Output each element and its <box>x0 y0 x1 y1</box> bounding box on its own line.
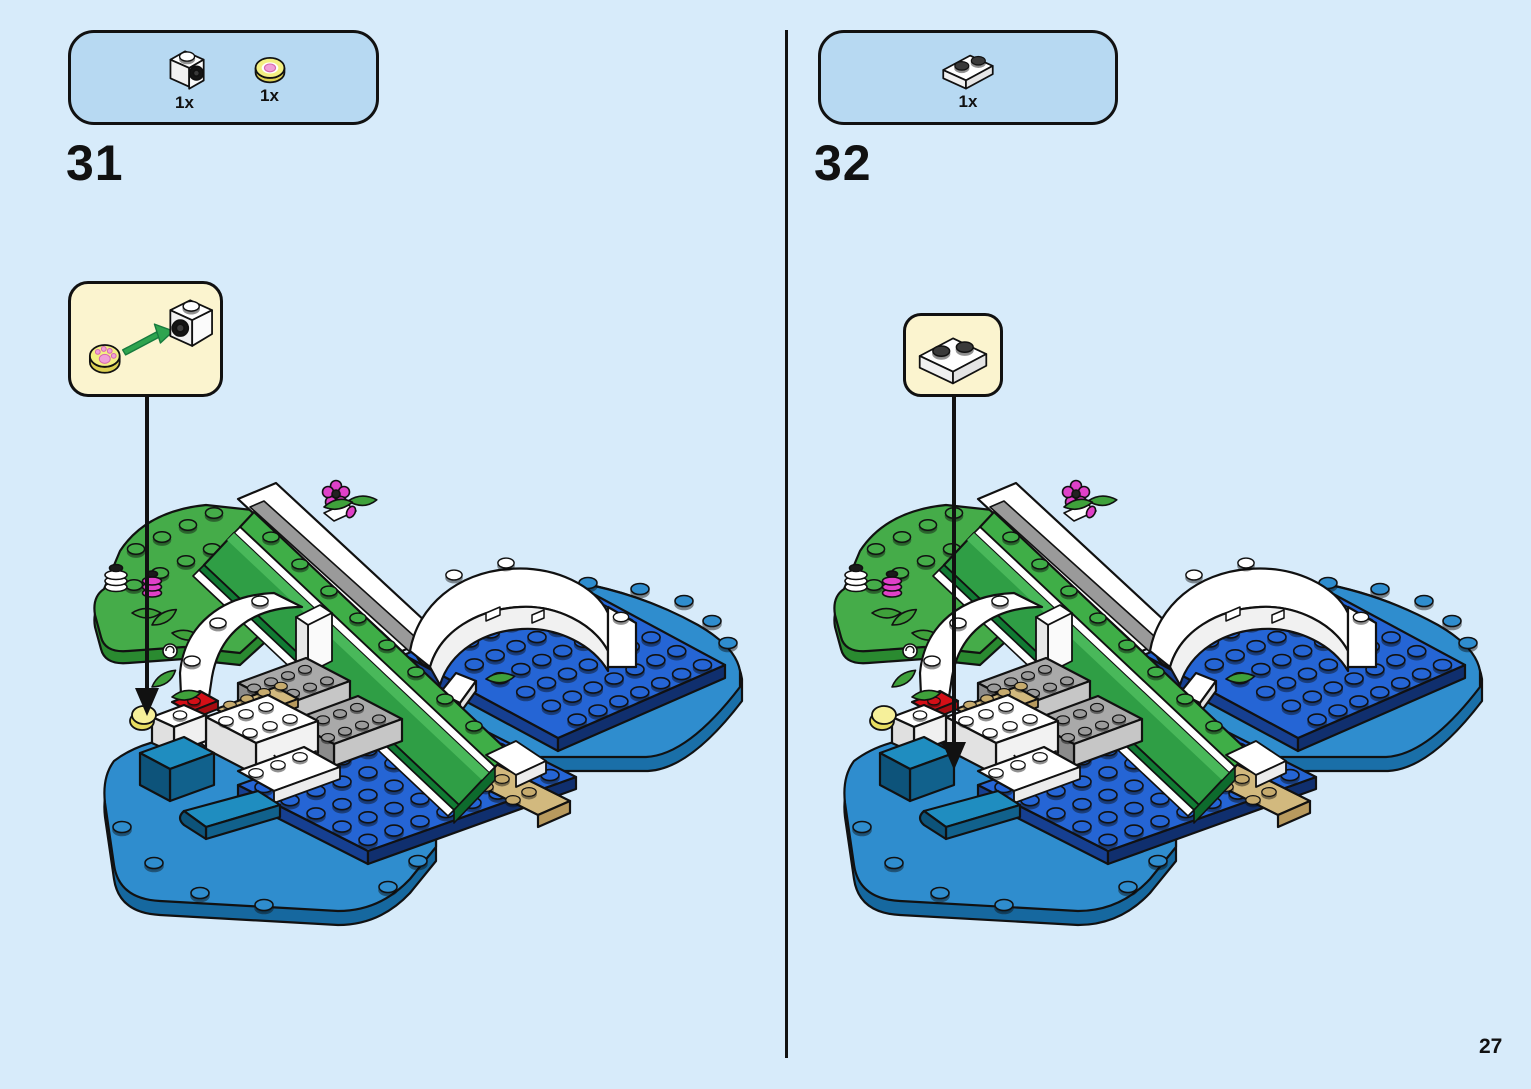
assembly-illustration-step-31 <box>88 455 748 940</box>
part-quantity: 1x <box>260 87 279 104</box>
parts-box-step-31: 1x 1x <box>68 30 379 125</box>
white-plate-1x1-holder-icon <box>158 45 212 93</box>
instruction-page: 1x 1x 31 <box>0 0 1531 1089</box>
callout-step-32 <box>903 313 1003 397</box>
callout-step-31 <box>68 281 223 397</box>
part-quantity: 1x <box>959 93 978 110</box>
build-arrow-31 <box>131 396 163 718</box>
page-number: 27 <box>1479 1035 1502 1059</box>
step-number-32: 32 <box>814 138 872 188</box>
step-number-31: 31 <box>66 138 124 188</box>
green-insert-arrow-icon <box>123 324 174 355</box>
part-item: 1x <box>250 52 290 104</box>
part-item: 1x <box>158 45 212 111</box>
white-plate-1x2-icon <box>920 338 987 383</box>
part-item: 1x <box>935 46 1001 110</box>
yellow-round-tile-paw-icon <box>250 52 290 86</box>
part-quantity: 1x <box>175 94 194 111</box>
column-divider <box>785 30 788 1058</box>
callout-31-illustration <box>71 284 220 394</box>
parts-box-step-32: 1x <box>818 30 1118 125</box>
callout-32-illustration <box>906 316 1000 394</box>
assembly-illustration-step-32 <box>828 455 1488 940</box>
white-plate-1x1-holder-icon <box>170 300 212 346</box>
build-arrow-32 <box>938 395 970 772</box>
white-plate-1x2-icon <box>935 46 1001 92</box>
